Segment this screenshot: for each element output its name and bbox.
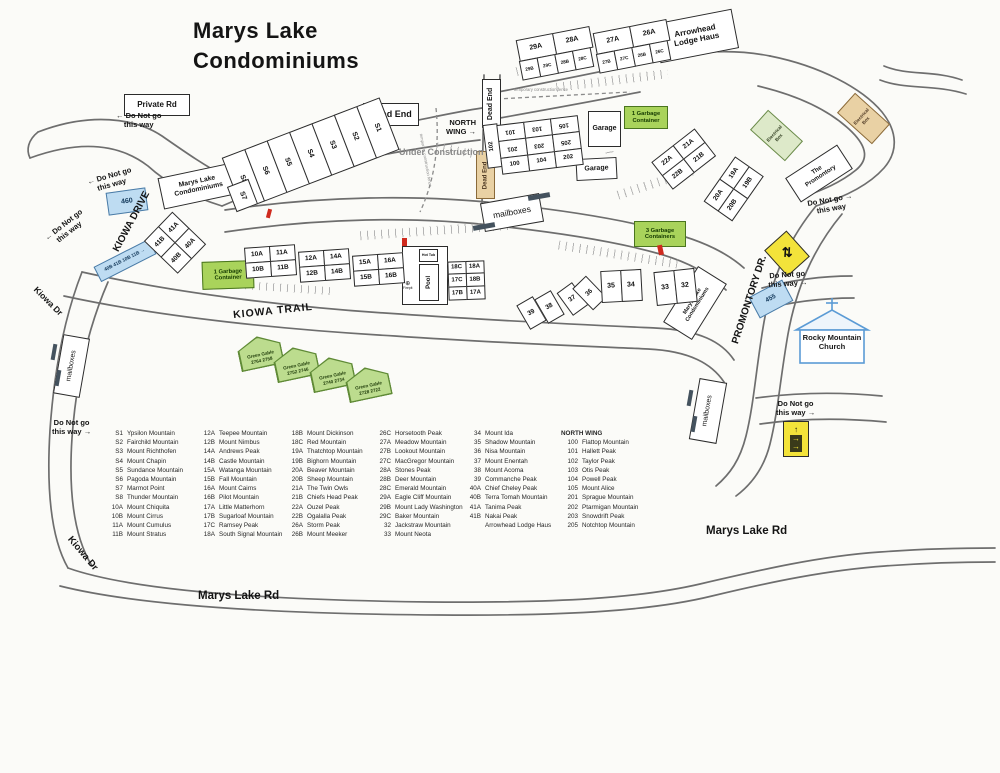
pool: Pool <box>419 264 439 301</box>
legend-item: 28AStones Peak <box>374 466 463 475</box>
garbage-containers-center: 3 Garbage Containers <box>634 221 686 247</box>
legend-item: 27CMacGregor Mountain <box>374 457 463 466</box>
arrow-right-icon: → <box>808 408 816 417</box>
legend-item: 38Mount Acoma <box>464 466 551 475</box>
legend-section-header: NORTH WING <box>561 429 638 438</box>
yellow-arrow-sign: ↑ → → <box>783 421 809 457</box>
legend-item: 26CHorsetooth Peak <box>374 429 463 438</box>
unit-104: 104 <box>527 151 557 172</box>
legend-item: 205Notchtop Mountain <box>561 521 638 530</box>
legend-item: 28BDeer Mountain <box>374 475 463 484</box>
unit-17B: 17B <box>448 286 467 300</box>
building-north-wing: 101103105201203205100104202 <box>496 115 582 174</box>
north-wing-map-label: NORTH WING → <box>446 119 476 137</box>
legend-item: 29BMount Lady Washington <box>374 503 463 512</box>
legend-item: 103Otis Peak <box>561 466 638 475</box>
dead-end-sign-vertical: Dead End <box>482 79 501 128</box>
legend-item: 41ATanima Peak <box>464 503 551 512</box>
legend-item: 33Mount Neota <box>374 530 463 539</box>
unit-16B: 16B <box>377 267 404 285</box>
legend-item: 104Powell Peak <box>561 475 638 484</box>
legend-item: 19BBighorn Mountain <box>286 457 363 466</box>
legend-item: S4Mount Chapin <box>106 457 183 466</box>
legend-item: 28CEmerald Mountain <box>374 484 463 493</box>
legend-column-3: 18BMount Dickinson18CRed Mountain19AThat… <box>286 429 363 539</box>
unit-17A: 17A <box>466 285 485 299</box>
unit-32: 32 <box>673 267 697 303</box>
legend-item: 202Ptarmigan Mountain <box>561 503 638 512</box>
legend-column-2: 12ATeepee Mountain12BMount Nimbus14AAndr… <box>198 429 282 539</box>
temp-fence-label-top: temporary construction fence <box>514 88 568 93</box>
legend-item: 14AAndrews Peak <box>198 447 282 456</box>
unit-14B: 14B <box>323 263 350 281</box>
unit-10B: 10B <box>245 260 272 278</box>
legend-item: 36Nisa Mountain <box>464 447 551 456</box>
legend-item: 105Mount Alice <box>561 484 638 493</box>
unit-12B: 12B <box>299 264 326 282</box>
legend-item: 17ALittle Matterhorn <box>198 503 282 512</box>
legend-item: 18BMount Dickinson <box>286 429 363 438</box>
legend-item: 11BMount Stratus <box>106 530 183 539</box>
legend-item: 17CRamsey Peak <box>198 521 282 530</box>
hydrant-marker <box>402 238 407 246</box>
legend-item: 12ATeepee Mountain <box>198 429 282 438</box>
legend-item: 19AThatchtop Mountain <box>286 447 363 456</box>
legend-item: 12BMount Nimbus <box>198 438 282 447</box>
north-wing-line2: WING → <box>446 128 476 137</box>
legend-item: S5Sundance Mountain <box>106 466 183 475</box>
arrow-left-icon: ← <box>86 176 96 187</box>
church-label: Rocky Mountain Church <box>790 334 874 352</box>
title-line1: Marys Lake <box>193 16 359 46</box>
legend-item: 16BPilot Mountain <box>198 493 282 502</box>
legend-item: 14BCastle Mountain <box>198 457 282 466</box>
legend-item: 40BTerra Tomah Mountain <box>464 493 551 502</box>
firepit: ⊕ Firepit <box>403 281 412 290</box>
unit-34: 34 <box>620 268 643 301</box>
legend-item: 17BSugarloaf Mountain <box>198 512 282 521</box>
arrow-right-icon: → <box>84 427 92 436</box>
legend-item: 10AMount Chiquita <box>106 503 183 512</box>
arrow-left-icon: ← <box>116 111 124 120</box>
legend-item: 29CBaker Mountain <box>374 512 463 521</box>
building-35-34: 3534 <box>600 269 642 302</box>
legend-item: 100Flattop Mountain <box>561 438 638 447</box>
legend-item: 27BLookout Mountain <box>374 447 463 456</box>
building-17-18: 18C18A17C18B17B17A <box>447 260 484 300</box>
unit-26C: 26C <box>648 40 670 63</box>
unit-11B: 11B <box>269 259 296 277</box>
legend-column-6: NORTH WING100Flattop Mountain101Hallett … <box>561 429 638 530</box>
legend-item: S8Thunder Mountain <box>106 493 183 502</box>
marys-lake-rd-left-label: Marys Lake Rd <box>198 590 279 604</box>
rocky-mountain-church: Rocky Mountain Church <box>790 296 874 366</box>
church-drawing <box>790 296 874 366</box>
unit-202: 202 <box>553 147 583 168</box>
building-10-11: 10A11A10B11B <box>244 244 296 277</box>
legend-item: 101Hallett Peak <box>561 447 638 456</box>
title-line2: Condominiums <box>193 46 359 76</box>
marys-lake-rd-right-label: Marys Lake Rd <box>706 525 787 539</box>
legend-item: 26BMount Meeker <box>286 530 363 539</box>
legend-item: 15AWatanga Mountain <box>198 466 282 475</box>
garage-1: Garage <box>588 111 621 147</box>
arrow-right-icon: → <box>800 277 808 287</box>
legend-item: S7Marmot Point <box>106 484 183 493</box>
do-not-go-line1: Do Not go <box>126 111 162 120</box>
legend-column-5: 34Mount Ida35Shadow Mountain36Nisa Mount… <box>464 429 551 530</box>
legend-item: 32Jackstraw Mountain <box>374 521 463 530</box>
legend-item: 15BFall Mountain <box>198 475 282 484</box>
crossing-arrows-icon: ⇅ <box>781 246 793 261</box>
under-construction-label: Under Construction <box>399 147 484 158</box>
legend-item: 27AMeadow Mountain <box>374 438 463 447</box>
legend-item: 11AMount Cumulus <box>106 521 183 530</box>
do-not-go-line2: this way <box>116 121 161 130</box>
legend-item: 41BNakai Peak <box>464 512 551 521</box>
dead-end-label: Dead End <box>488 87 496 119</box>
legend-item: S2Fairchild Mountain <box>106 438 183 447</box>
legend-item: 22BOgalalla Peak <box>286 512 363 521</box>
building-15-16: 15A16A15B16B <box>352 252 404 285</box>
building-33-32: 3332 <box>653 268 696 305</box>
legend-item: 203Snowdrift Peak <box>561 512 638 521</box>
unit-15B: 15B <box>353 268 380 286</box>
legend-item: 20BSheep Mountain <box>286 475 363 484</box>
legend-item: 37Mount Enentah <box>464 457 551 466</box>
page-title: Marys Lake Condominiums <box>193 16 359 75</box>
arrow-right-icon: → <box>790 443 802 451</box>
legend-item: Arrowhead Lodge Haus <box>464 521 551 530</box>
hot-tub: Hot Tub <box>419 249 438 262</box>
legend-item: 16AMount Cairns <box>198 484 282 493</box>
building-12-14: 12A14A12B14B <box>298 248 350 281</box>
do-not-go-right2: Do Not go this way → <box>767 270 807 290</box>
legend-item: S6Pagoda Mountain <box>106 475 183 484</box>
private-rd-label: Private Rd <box>137 101 177 110</box>
legend-item: S3Mount Richthofen <box>106 447 183 456</box>
garbage-container-topright: 1 Garbage Container <box>624 106 668 129</box>
marys-lake-condominiums-map: { "title": {"line1": "Marys Lake", "line… <box>0 0 1000 773</box>
legend-item: 21BChiefs Head Peak <box>286 493 363 502</box>
arrow-right-icon: → <box>844 191 853 201</box>
legend-item: 22AOuzel Peak <box>286 503 363 512</box>
legend-item: 40AChief Cheley Peak <box>464 484 551 493</box>
do-not-go-bottomleft: Do Not go this way → <box>52 419 91 437</box>
legend-item: 26AStorm Peak <box>286 521 363 530</box>
legend-item: 21AThe Twin Owls <box>286 484 363 493</box>
legend-item: 20ABeaver Mountain <box>286 466 363 475</box>
legend-item: 39Commanche Peak <box>464 475 551 484</box>
legend-column-4: 26CHorsetooth Peak27AMeadow Mountain27BL… <box>374 429 463 539</box>
legend-item: 18CRed Mountain <box>286 438 363 447</box>
legend-item: 201Sprague Mountain <box>561 493 638 502</box>
legend-item: 102Taylor Peak <box>561 457 638 466</box>
legend-item: S1Ypsilon Mountain <box>106 429 183 438</box>
legend-item: 18ASouth Signal Mountain <box>198 530 282 539</box>
do-not-go-topleft: ← Do Not go this way <box>116 112 161 130</box>
legend-item: 34Mount Ida <box>464 429 551 438</box>
do-not-go-right3: Do Not go this way → <box>776 400 815 418</box>
unit-28C: 28C <box>571 47 593 70</box>
legend-column-1: S1Ypsilon MountainS2Fairchild MountainS3… <box>106 429 183 539</box>
legend-item: 29AEagle Cliff Mountain <box>374 493 463 502</box>
legend-item: 10BMount Cirrus <box>106 512 183 521</box>
legend-item: 35Shadow Mountain <box>464 438 551 447</box>
unit-100: 100 <box>500 154 530 175</box>
